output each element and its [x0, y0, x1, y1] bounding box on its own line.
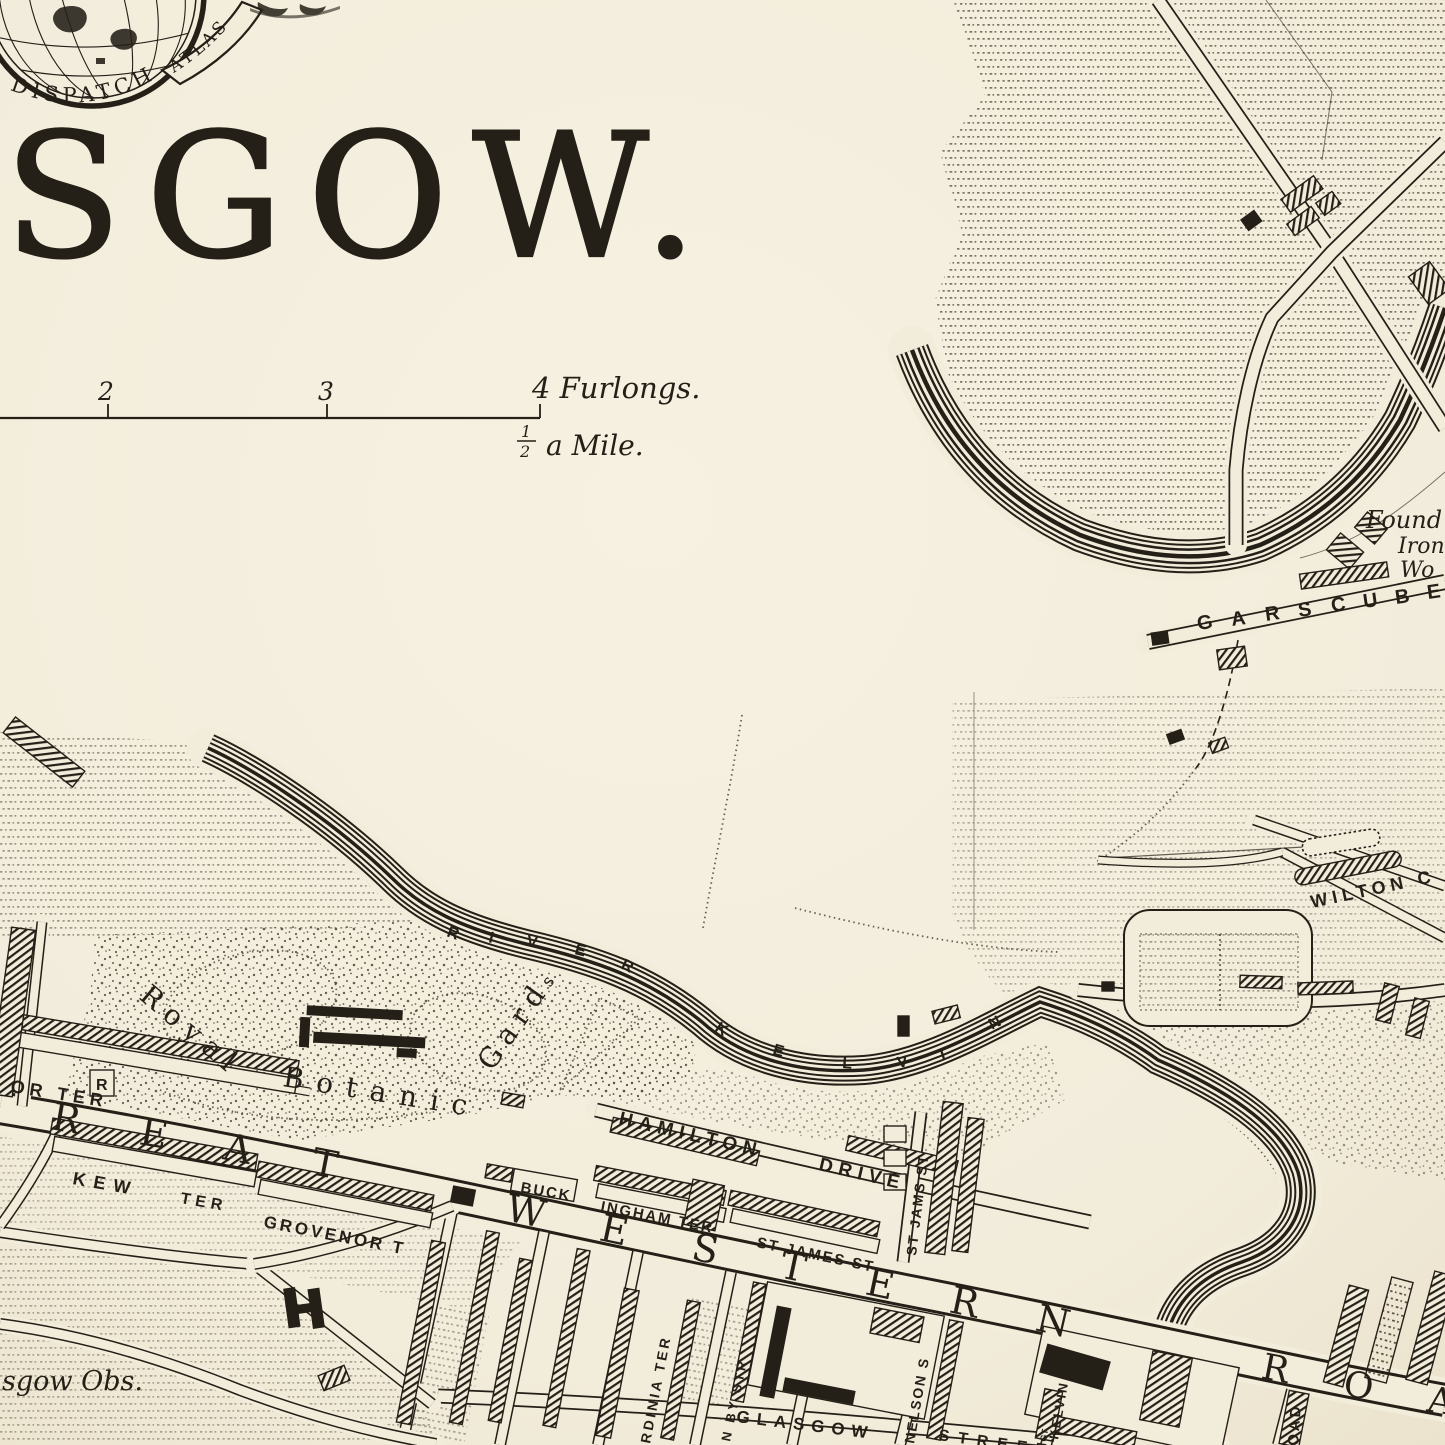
- bowling-green: [1124, 910, 1312, 1026]
- road-letter: B: [1394, 585, 1411, 609]
- scale-tick-3: 3: [318, 377, 334, 406]
- road-letter: G: [1196, 611, 1214, 635]
- scale-tick-2: 2: [97, 377, 114, 406]
- scale-furlongs-label: 4 Furlongs.: [531, 371, 700, 405]
- road-letter: C: [1330, 593, 1347, 617]
- road-letter: A: [1230, 607, 1247, 631]
- glasgow-observatory-label: sgow Obs.: [2, 1366, 143, 1397]
- road-vertical-label: OAD: [1285, 1403, 1305, 1445]
- half-mile-numerator: 1: [521, 422, 531, 441]
- vintage-glasgow-map: DISPATCH ATLAS SGOW. 2 3 4 Furlongs. 1 2…: [0, 0, 1445, 1445]
- foundry-label-line2: Iron: [1397, 534, 1445, 559]
- foundry-label-line1: Found: [1365, 506, 1442, 534]
- kelvin-letter: L: [842, 1055, 853, 1073]
- boxed-r-label: R: [96, 1077, 108, 1094]
- map-title: SGOW.: [4, 96, 722, 297]
- half-mile-label: a Mile.: [546, 429, 644, 462]
- foundry-label-line3: Wo: [1400, 558, 1434, 583]
- half-mile-denominator: 2: [519, 442, 530, 461]
- road-letter: U: [1362, 589, 1379, 613]
